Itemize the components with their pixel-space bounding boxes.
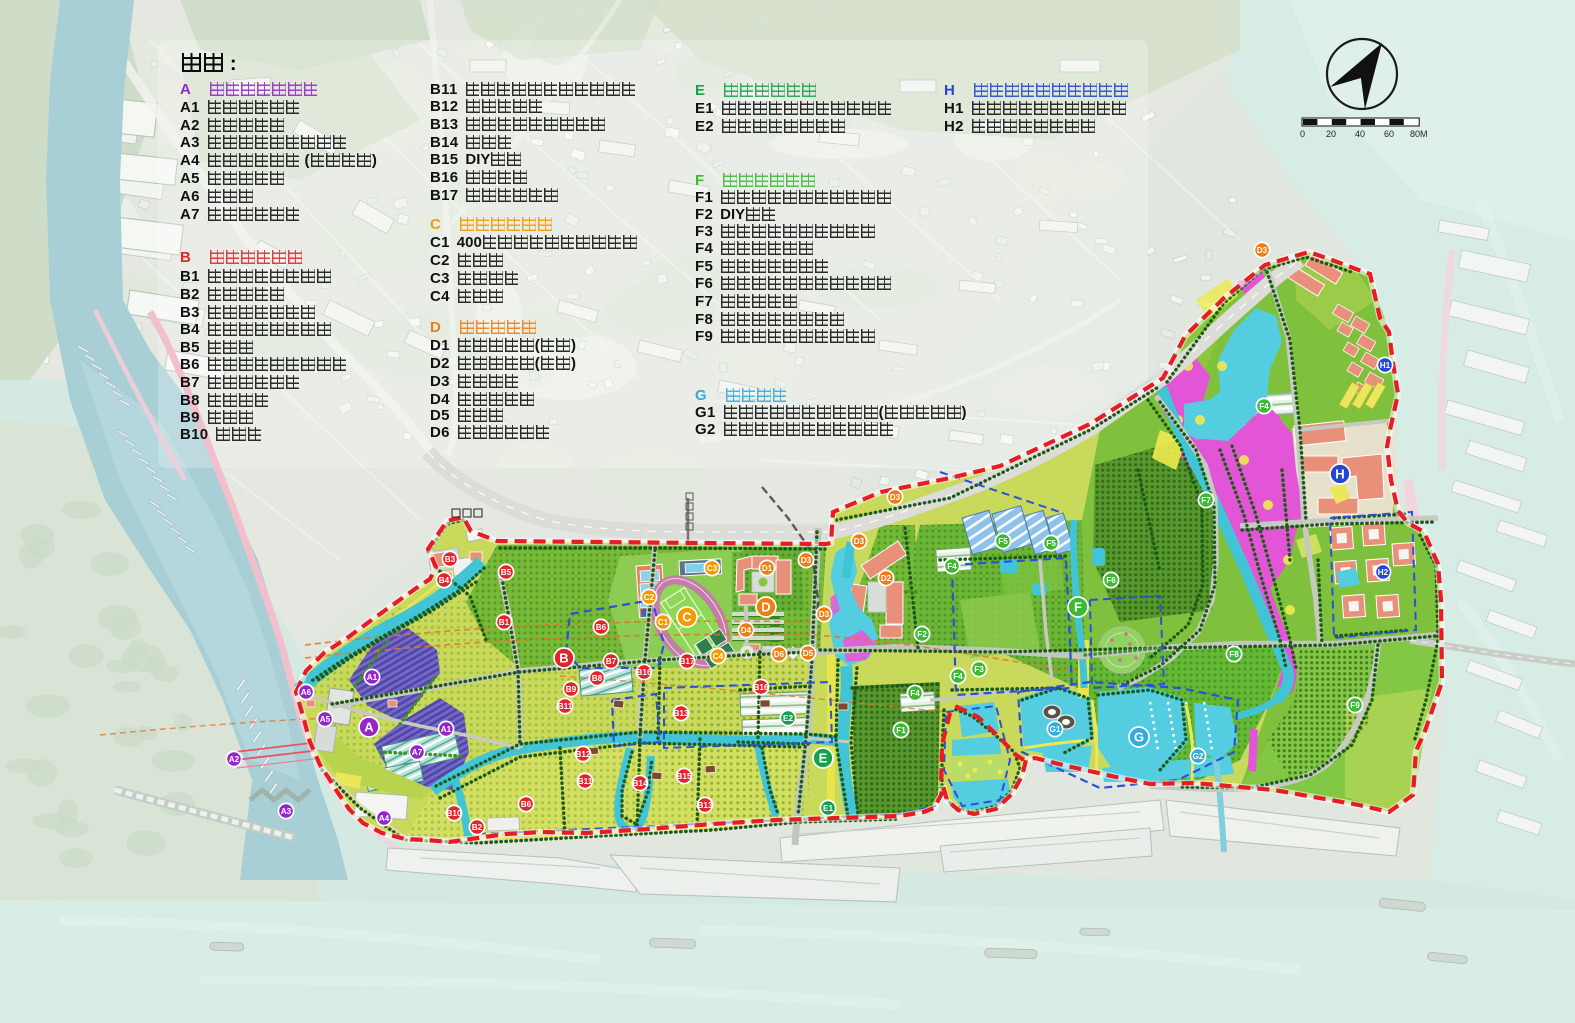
svg-text:D3: D3	[890, 493, 901, 502]
svg-text:40: 40	[1355, 129, 1365, 139]
svg-text:F1: F1	[896, 726, 906, 735]
svg-text:B11: B11	[558, 702, 573, 711]
svg-text:F4: F4	[947, 562, 957, 571]
svg-text:D6: D6	[774, 650, 785, 659]
svg-text:B3: B3	[445, 555, 456, 564]
svg-text:F3: F3	[974, 665, 984, 674]
svg-text:B13: B13	[697, 801, 712, 810]
svg-text:H1: H1	[1380, 361, 1391, 370]
svg-text:G: G	[1134, 730, 1144, 745]
svg-text:80M: 80M	[1410, 129, 1428, 139]
svg-text:F8: F8	[1229, 650, 1239, 659]
svg-text:A2: A2	[229, 755, 240, 764]
svg-text:C: C	[682, 610, 692, 625]
svg-text:60: 60	[1384, 129, 1394, 139]
svg-text:A5: A5	[320, 715, 331, 724]
svg-text:B17: B17	[679, 657, 694, 666]
svg-text:B16: B16	[636, 668, 651, 677]
svg-text:B14: B14	[632, 779, 647, 788]
svg-text:F: F	[1074, 600, 1082, 615]
svg-text:20: 20	[1326, 129, 1336, 139]
svg-text:B11: B11	[578, 777, 593, 786]
svg-text:B15: B15	[676, 772, 691, 781]
svg-text:B6: B6	[596, 623, 607, 632]
svg-text:D3: D3	[854, 537, 865, 546]
svg-text:H2: H2	[1378, 568, 1389, 577]
svg-text:D1: D1	[762, 564, 773, 573]
svg-text:A3: A3	[281, 807, 292, 816]
svg-text:D: D	[761, 600, 770, 615]
svg-text:0: 0	[1300, 129, 1305, 139]
svg-text:E1: E1	[823, 804, 833, 813]
svg-text:A6: A6	[301, 688, 312, 697]
svg-text:F4: F4	[1259, 402, 1269, 411]
svg-text:H: H	[1335, 467, 1344, 482]
svg-text:F5: F5	[998, 537, 1008, 546]
svg-text:D3: D3	[801, 556, 812, 565]
svg-text:B9: B9	[566, 685, 577, 694]
svg-text:D2: D2	[881, 574, 892, 583]
svg-text:B5: B5	[501, 568, 512, 577]
svg-text:D3: D3	[819, 610, 830, 619]
svg-text:E: E	[819, 751, 828, 766]
svg-text:A: A	[364, 720, 374, 735]
svg-text:B8: B8	[592, 674, 603, 683]
svg-text:D4: D4	[741, 626, 752, 635]
svg-text:F9: F9	[1350, 701, 1360, 710]
svg-text:B: B	[559, 651, 568, 666]
svg-text:B13: B13	[673, 709, 688, 718]
svg-text:B10: B10	[446, 809, 461, 818]
svg-text:B1: B1	[499, 618, 510, 627]
svg-text:F6: F6	[1106, 576, 1116, 585]
svg-text:F4: F4	[953, 672, 963, 681]
svg-text:A7: A7	[412, 748, 423, 757]
svg-text:G2: G2	[1193, 752, 1204, 761]
svg-text:F2: F2	[917, 630, 927, 639]
svg-text:B12: B12	[575, 750, 590, 759]
svg-text:B16: B16	[753, 683, 768, 692]
svg-text:B7: B7	[606, 657, 617, 666]
svg-text:C3: C3	[707, 564, 718, 573]
svg-text:A1: A1	[441, 725, 452, 734]
svg-text:D3: D3	[1257, 246, 1268, 255]
svg-text:G1: G1	[1050, 725, 1061, 734]
svg-text:F4: F4	[910, 689, 920, 698]
svg-text:C4: C4	[713, 652, 724, 661]
svg-text:D5: D5	[803, 649, 814, 658]
svg-text:F7: F7	[1201, 496, 1211, 505]
svg-text:E2: E2	[783, 714, 793, 723]
svg-text:C2: C2	[644, 593, 655, 602]
svg-text:A4: A4	[379, 814, 390, 823]
svg-text:B2: B2	[472, 823, 483, 832]
svg-text:A1: A1	[367, 673, 378, 682]
svg-text:C1: C1	[658, 618, 669, 627]
svg-text:B6: B6	[521, 800, 532, 809]
svg-text:B4: B4	[439, 576, 450, 585]
svg-text:F5: F5	[1046, 539, 1056, 548]
